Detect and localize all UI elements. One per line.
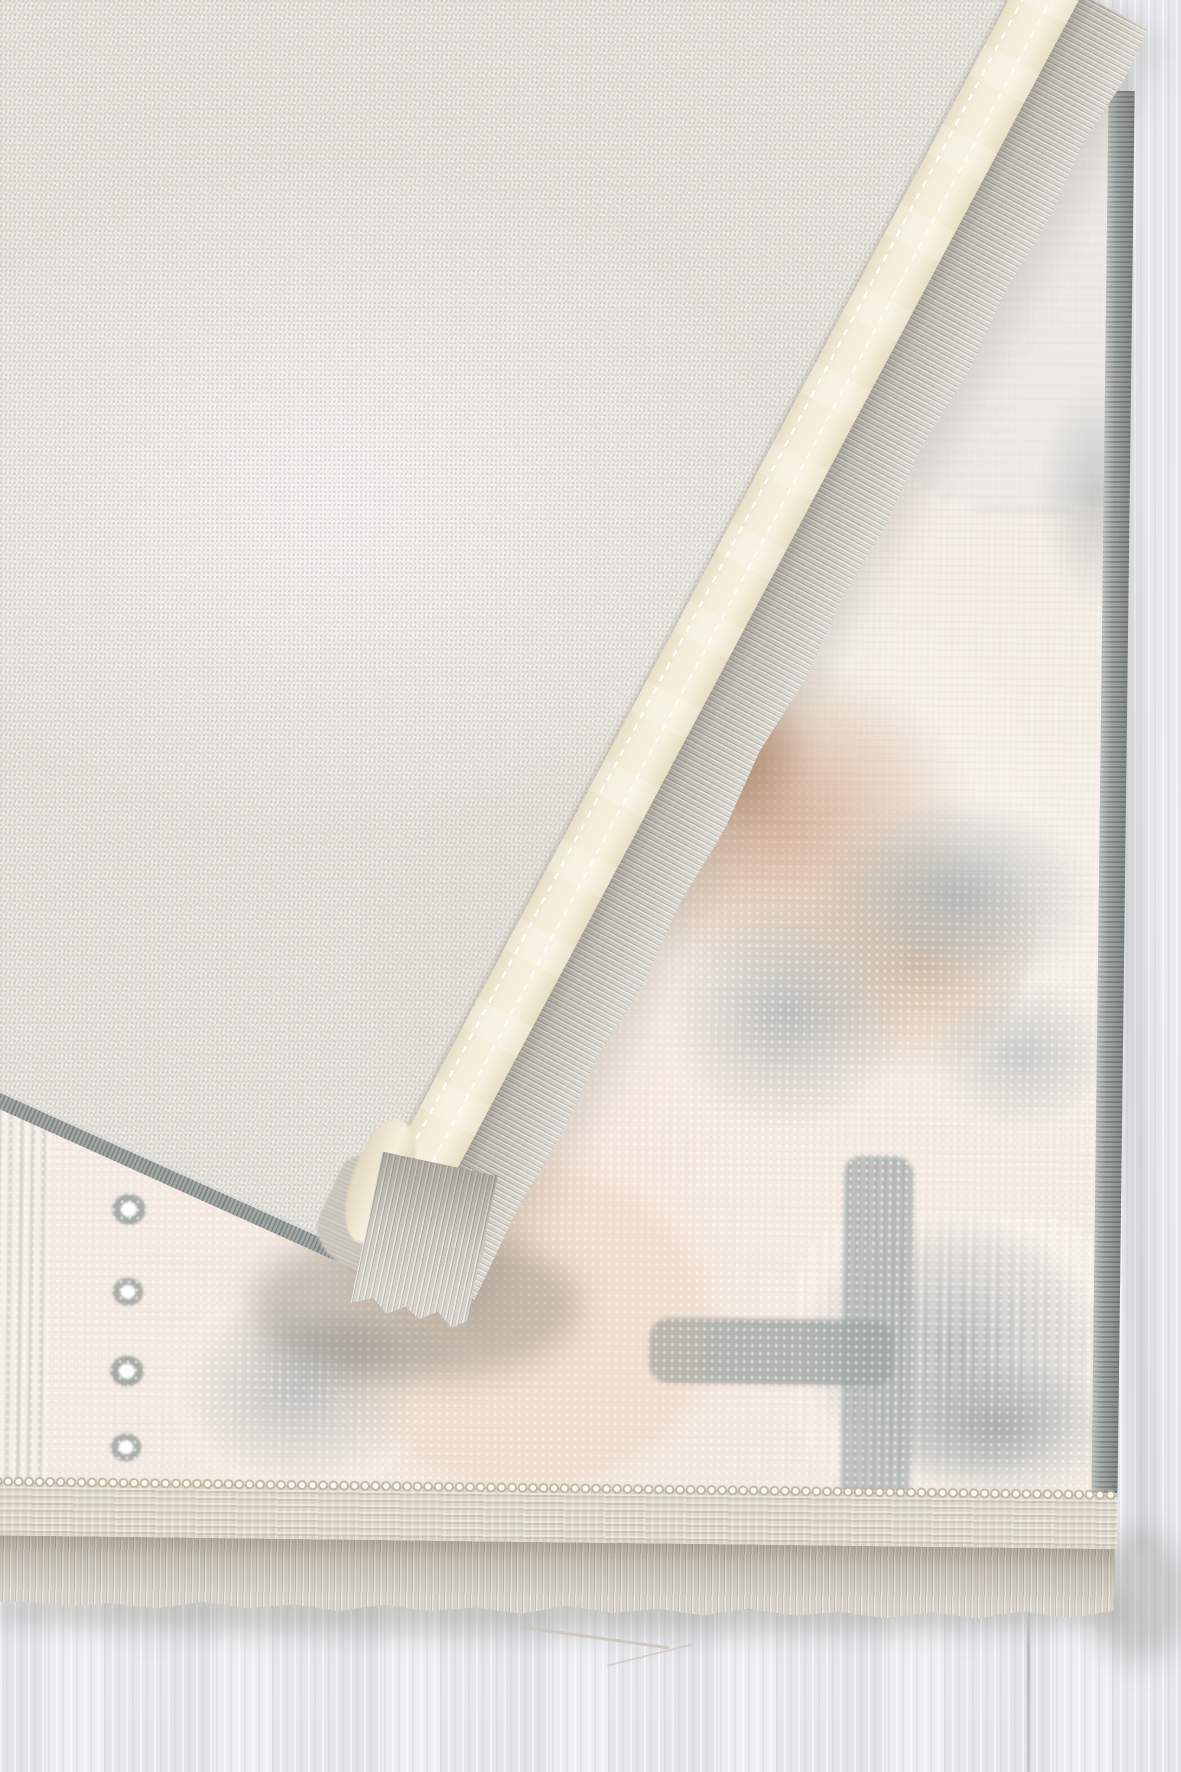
photo-canvas [0,0,1181,1772]
floor-plank-seam [1027,1604,1030,1772]
rug-bottom-fringe [0,1535,1115,1621]
